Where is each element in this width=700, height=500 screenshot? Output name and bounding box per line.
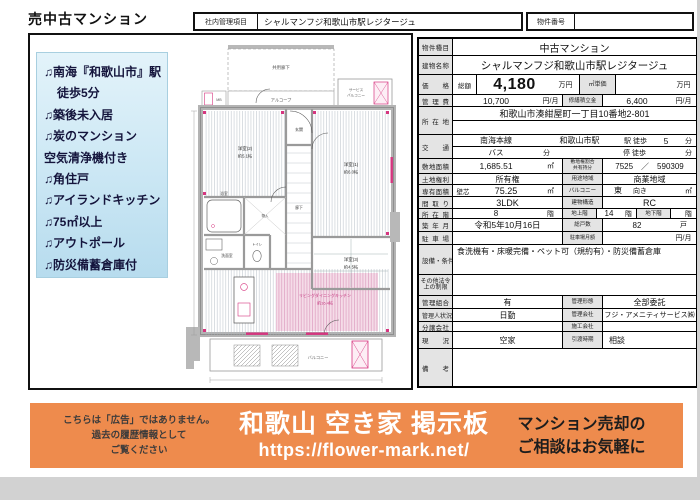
parking-value (453, 232, 563, 244)
closet-label: 物入 (262, 213, 269, 218)
table-row: 物件種目 中古マンション (419, 39, 696, 56)
floors-above-label: 地上階 (563, 209, 597, 218)
banner-disclaimer: こちらは「広告」ではありません。 過去の履歴情報として ご覧ください (44, 413, 234, 458)
row-label: 敷地面積 (419, 159, 453, 173)
cta-line-2: ご相談はお気軽に (494, 436, 669, 459)
feature-item: ♫アウトポール (44, 233, 160, 254)
zone-label: 用途地域 (563, 174, 603, 184)
table-row: 所在地 和歌山市湊紺屋町一丁目10番地2-801 (419, 107, 696, 135)
music-note-icon: ♫ (44, 193, 53, 207)
row-label: 駐車場 (419, 232, 453, 244)
manager-status-value: 日勤 (453, 309, 563, 321)
hallway-label: 廊下 (295, 205, 303, 210)
structure-label: 建物構造 (563, 197, 603, 208)
feature-item: ♫アイランドキッチン (44, 190, 160, 211)
mgmt-form-value: 全部委託 (603, 296, 696, 308)
property-type-value: 中古マンション (453, 39, 696, 55)
row-label: 分譲会社 (419, 322, 453, 331)
repair-fund-label: 修繕積立金 (563, 95, 603, 106)
balcony-equipment (272, 345, 298, 366)
mgmt-form-label: 管理形態 (563, 296, 603, 308)
property-number-value (575, 14, 692, 29)
music-note-icon: ♫ (44, 65, 53, 79)
balcony-label: バルコニー (563, 185, 603, 196)
pipe-shaft (390, 212, 400, 242)
table-row: その他法令 上の制限 (419, 275, 696, 296)
table-row: 駐車場 駐車場月額 円/月 (419, 232, 696, 245)
parking-fee-unit: 円/月 (671, 232, 696, 244)
row-label: 管理人状況 (419, 309, 453, 321)
bedroom2-label: 洋室(2) (238, 145, 253, 152)
row-label: 所在地 (419, 107, 453, 134)
floors-above-value: 14 (597, 209, 621, 218)
transport-bus-unit: 分 (539, 147, 582, 158)
row-label: 築年月 (419, 219, 453, 231)
row-label: 管理組合 (419, 296, 453, 308)
table-row: 建物名称 シャルマンフジ和歌山市駅レジタージュ (419, 56, 696, 75)
repair-fund-value: 6,400 (603, 95, 671, 106)
feature-text: 角住戸 (53, 172, 89, 186)
table-row: 所在階 8 階 地上階 14 階 地下階 階 (419, 209, 696, 219)
wall-stub (186, 359, 194, 369)
repair-fund-unit: 円/月 (671, 95, 696, 106)
table-row: 管理人状況 日勤 管理会社 フジ・アメニティサービス㈱ (419, 309, 696, 322)
row-label: 設備・条件 (419, 245, 453, 274)
balcony-facing: 向き (633, 185, 666, 196)
price-total-label: 総額 (453, 75, 477, 94)
alcove-label: アルコーブ (271, 97, 292, 104)
floor-value: 8 (453, 209, 539, 218)
other-restrictions-label-2: 上の制限 (423, 285, 447, 291)
table-row: 備考 (419, 349, 696, 386)
desk-background (0, 477, 700, 500)
row-label: その他法令 上の制限 (419, 275, 453, 295)
feature-text: 炭のマンション (53, 129, 137, 143)
site-url-link[interactable]: https://flower-mark.net/ (234, 438, 494, 462)
row-label: 管理費 (419, 95, 453, 106)
ldk-size: 約16.4帖 (317, 300, 333, 306)
feature-item: ♫75㎡以上 (44, 212, 160, 233)
transport-walk-unit: 分 (685, 136, 692, 146)
common-corridor-label: 共用廊下 (272, 64, 290, 71)
feature-item: ♫築後未入居 (44, 105, 160, 126)
feature-item: ♫角住戸 (44, 169, 160, 190)
property-number-label: 物件番号 (528, 14, 575, 29)
exclusive-area-sub: 壁芯 (453, 185, 473, 196)
built-date-value: 令和5年10月16日 (453, 219, 563, 231)
table-row: 交通 南海本線 和歌山市駅 駅 徒歩 5 分 バス 分 停 徒歩 分 (419, 135, 696, 159)
site-title: 和歌山 空き家 掲示板 (234, 410, 494, 438)
land-ratio-label-2: 共有持分 (573, 166, 592, 172)
builder-label: 施工会社 (563, 322, 603, 331)
row-label: 間取り (419, 197, 453, 208)
banner-site: 和歌山 空き家 掲示板 https://flower-mark.net/ (234, 410, 494, 462)
row-label: 交通 (419, 135, 453, 158)
table-row: 価格 総額 4,180 万円 ㎡単価 万円 (419, 75, 696, 95)
transport-bus: バス (453, 147, 539, 158)
music-note-icon: ♫ (44, 172, 53, 186)
zone-value: 商業地域 (603, 174, 696, 184)
music-note-icon: ♫ (44, 258, 53, 272)
disclaimer-line-1: こちらは「広告」ではありません。 (44, 413, 234, 428)
meter-box-area (202, 91, 226, 107)
parking-fee-value (603, 232, 671, 244)
remarks-value (453, 349, 696, 386)
building-name-value: シャルマンフジ和歌山市駅レジタージュ (453, 56, 696, 74)
music-note-icon: ♫ (44, 129, 53, 143)
internal-management-label: 社内管理項目 (195, 14, 258, 29)
price-total-value: 4,180 (477, 75, 552, 94)
balcony-unit: ㎡ (666, 185, 696, 196)
floor-plan-drawing: 共用廊下 アルコーブ MB サービス バルコニー (186, 37, 408, 387)
handover-value: 相談 (603, 332, 696, 348)
table-row: 設備・条件 食洗機有・床暖完備・ペット可（規約有）・防災備蓄倉庫 (419, 245, 696, 275)
property-number-box: 物件番号 (526, 12, 694, 31)
wall-stub (186, 327, 200, 361)
transport-stop-label: 停 徒歩 (582, 147, 652, 158)
music-note-icon: ♫ (44, 215, 53, 229)
floor-unit: 階 (539, 209, 563, 218)
bedroom3-size: 約4.5帖 (344, 264, 358, 271)
row-label: 土地権利 (419, 174, 453, 184)
mgmt-assoc-value: 有 (453, 296, 563, 308)
service-balcony-label-2: バルコニー (347, 94, 365, 98)
current-status-value: 空家 (453, 332, 563, 348)
transport-walk-value: 5 (664, 136, 669, 146)
row-label: 価格 (419, 75, 453, 94)
transport-station: 和歌山市駅 (539, 135, 620, 146)
land-area-unit: ㎡ (539, 159, 563, 173)
land-area-value: 1,685.51 (453, 159, 539, 173)
total-units-label: 総戸数 (563, 219, 603, 231)
builder-value (603, 322, 696, 331)
washroom-label: 洗面室 (221, 253, 233, 258)
feature-item: ♫炭のマンション (44, 126, 160, 147)
wall-segment (228, 45, 334, 49)
service-balcony-label-1: サービス (349, 87, 364, 92)
table-row: 間取り 3LDK 建物構造 RC (419, 197, 696, 209)
disclaimer-line-3: ご覧ください (44, 443, 234, 458)
ad-banner: こちらは「広告」ではありません。 過去の履歴情報として ご覧ください 和歌山 空… (30, 403, 683, 468)
bedroom1-label: 洋室(1) (344, 161, 359, 168)
table-row: 土地権利 所有権 用途地域 商業地域 (419, 174, 696, 185)
table-row: 現況 空家 引渡時期 相談 (419, 332, 696, 349)
transport-walk-label: 駅 徒歩 (624, 136, 647, 146)
table-row: 管理費 10,700 円/月 修繕積立金 6,400 円/月 (419, 95, 696, 107)
equipment-value: 食洗機有・床暖完備・ペット可（規約有）・防災備蓄倉庫 (453, 245, 696, 274)
mgmt-company-value: フジ・アメニティサービス㈱ (603, 309, 696, 321)
toilet-bowl (253, 250, 261, 261)
toilet-label: トイレ (252, 243, 263, 247)
parking-fee-label: 駐車場月額 (563, 232, 603, 244)
structure-value: RC (603, 197, 696, 208)
admin-fee-unit: 円/月 (539, 95, 563, 106)
cta-line-1: マンション売却の (494, 413, 669, 436)
feature-text: 75㎡以上 (53, 215, 102, 229)
floors-below-value (671, 209, 681, 218)
meter-box-label: MB (216, 98, 222, 102)
bedroom1-size: 約6.0帖 (344, 169, 358, 176)
balcony-equipment (234, 345, 260, 366)
admin-fee-value: 10,700 (453, 95, 539, 106)
table-row: 管理組合 有 管理形態 全部委託 (419, 296, 696, 309)
transport-stop-unit: 分 (652, 147, 696, 158)
common-corridor-area (228, 49, 334, 91)
flyer-page: 売中古マンション 社内管理項目 シャルマンフジ和歌山市駅レジタージュ 物件番号 … (0, 0, 697, 477)
balcony-dir: 東 (603, 185, 633, 196)
music-note-icon: ♫ (44, 236, 53, 250)
row-label: 専有面積 (419, 185, 453, 196)
table-row: 築年月 令和5年10月16日 総戸数 82 戸 (419, 219, 696, 232)
feature-text: 空気清浄機付き (44, 151, 128, 165)
feature-text: アウトポール (53, 236, 125, 250)
other-restrictions-value (453, 275, 696, 295)
location-value: 和歌山市湊紺屋町一丁目10番地2-801 (453, 107, 696, 120)
row-label: 所在階 (419, 209, 453, 218)
price-sqm-value (616, 75, 671, 94)
floors-above-unit: 階 (621, 209, 637, 218)
feature-item: ♫南海『和歌山市』駅 (44, 62, 160, 83)
total-units-value: 82 (603, 219, 671, 231)
feature-item: 空気清浄機付き (44, 148, 160, 169)
price-sqm-label: ㎡単価 (580, 75, 616, 94)
price-total-unit: 万円 (552, 75, 580, 94)
seller-value (453, 322, 563, 331)
floors-below-unit: 階 (681, 209, 696, 218)
layout-value: 3LDK (453, 197, 563, 208)
property-table: 物件種目 中古マンション 建物名称 シャルマンフジ和歌山市駅レジタージュ 価格 … (417, 37, 698, 388)
exclusive-area-unit: ㎡ (539, 185, 563, 196)
ldk-label: リビングダイニングキッチン (299, 292, 351, 298)
washstand (206, 239, 222, 250)
bedroom2-size: 約5.1帖 (238, 153, 252, 160)
table-row: 分譲会社 施工会社 (419, 322, 696, 332)
price-sqm-unit: 万円 (671, 75, 696, 94)
table-row: 敷地面積 1,685.51 ㎡ 敷地権割合 共有持分 7525 ／ 590309 (419, 159, 696, 174)
transport-line: 南海本線 (453, 135, 539, 146)
feature-text: 防災備蓄倉庫付 (53, 258, 137, 272)
row-label: 備考 (419, 349, 453, 386)
table-row: 専有面積 壁芯 75.25 ㎡ バルコニー 東 向き ㎡ (419, 185, 696, 197)
exclusive-area-value: 75.25 (473, 185, 539, 196)
internal-management-value: シャルマンフジ和歌山市駅レジタージュ (258, 14, 521, 29)
mgmt-company-label: 管理会社 (563, 309, 603, 321)
feature-list: ♫南海『和歌山市』駅 徒歩5分 ♫築後未入居 ♫炭のマンション 空気清浄機付き … (36, 52, 168, 278)
row-label: 物件種目 (419, 39, 453, 55)
page-title: 売中古マンション (28, 9, 148, 29)
feature-item: 徒歩5分 (44, 83, 160, 104)
location-value-2 (453, 121, 696, 134)
entrance-label: 玄関 (295, 126, 303, 132)
floors-below-label: 地下階 (637, 209, 671, 218)
land-ratio-value: 7525 ／ 590309 (603, 159, 696, 173)
disclaimer-line-2: 過去の履歴情報として (44, 428, 234, 443)
feature-item: ♫防災備蓄倉庫付 (44, 255, 160, 276)
internal-management-box: 社内管理項目 シャルマンフジ和歌山市駅レジタージュ (193, 12, 523, 31)
row-label: 現況 (419, 332, 453, 348)
feature-text: 徒歩5分 (57, 86, 100, 100)
banner-cta: マンション売却の ご相談はお気軽に (494, 413, 669, 459)
balcony-label: バルコニー (308, 355, 329, 360)
feature-text: 南海『和歌山市』駅 (53, 65, 161, 79)
bedroom3-label: 洋室(3) (344, 256, 359, 263)
land-rights-value: 所有権 (453, 174, 563, 184)
row-label: 建物名称 (419, 56, 453, 74)
feature-text: 築後未入居 (53, 108, 113, 122)
feature-text: アイランドキッチン (53, 193, 160, 207)
handover-label: 引渡時期 (563, 332, 603, 348)
bath-label: 浴室 (220, 191, 228, 196)
total-units-unit: 戸 (671, 219, 696, 231)
music-note-icon: ♫ (44, 108, 53, 122)
